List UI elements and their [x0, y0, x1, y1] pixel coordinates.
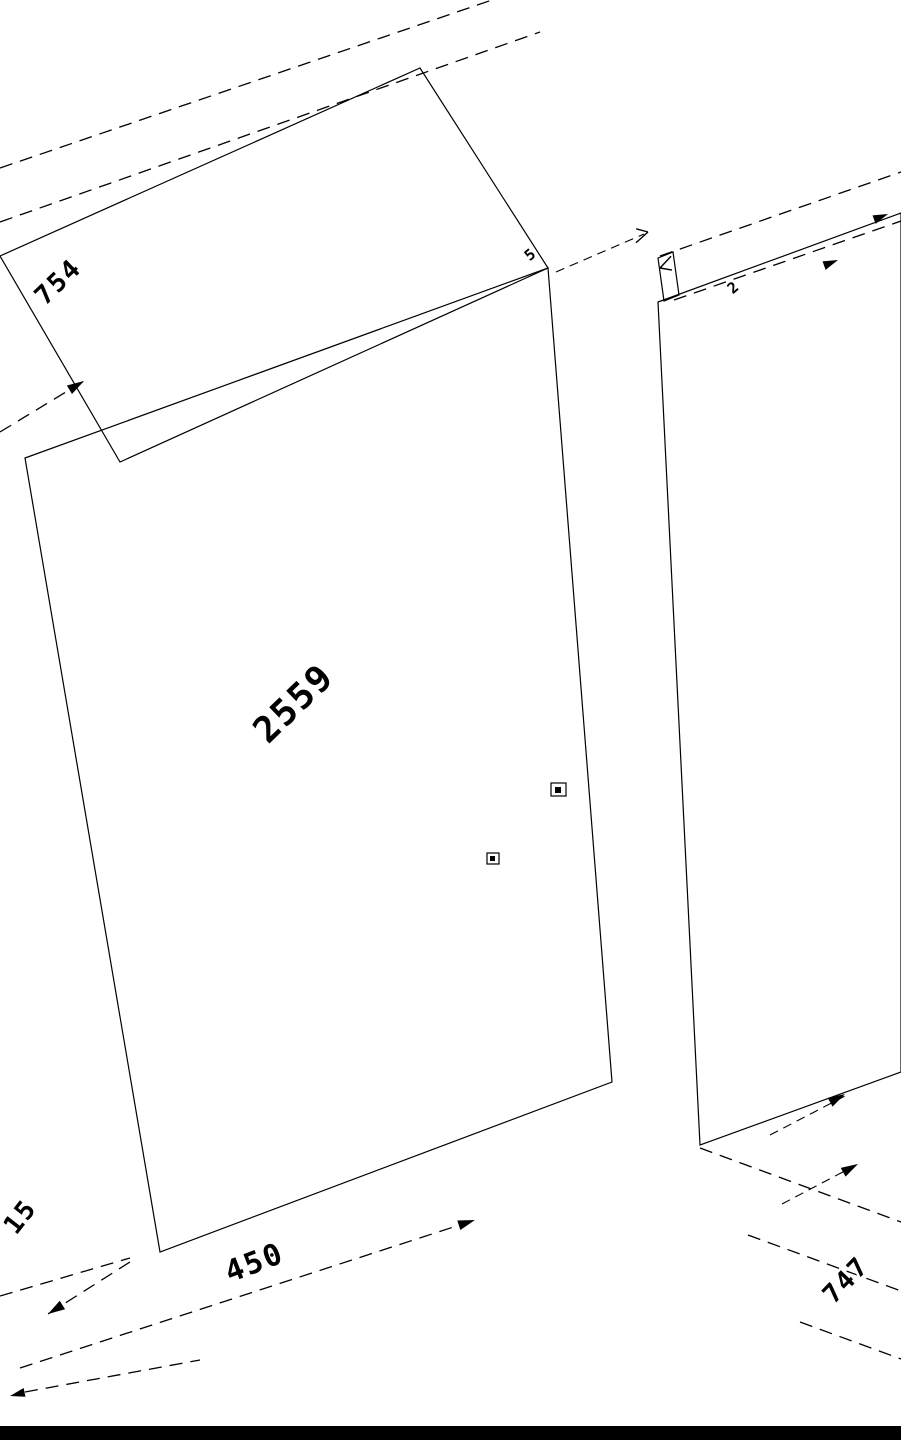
isometric-cad-drawing: 754 5 2 2559 450 15 747 — [0, 0, 901, 1440]
footer-bar — [0, 1426, 901, 1440]
handle-dot-icon — [555, 787, 561, 793]
background — [0, 0, 901, 1440]
handle-dot-icon — [490, 856, 495, 861]
drawing-canvas: 754 5 2 2559 450 15 747 — [0, 0, 901, 1440]
